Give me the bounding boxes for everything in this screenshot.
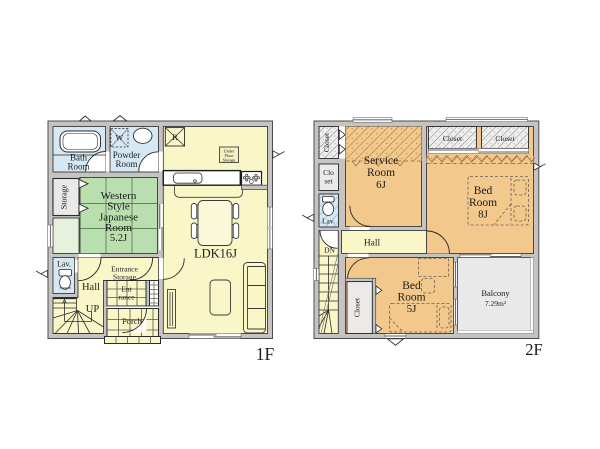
svg-text:Room: Room — [469, 197, 497, 209]
svg-text:2F: 2F — [525, 340, 542, 359]
svg-text:Service: Service — [364, 155, 398, 167]
svg-text:Closet: Closet — [353, 297, 362, 317]
svg-text:5J: 5J — [407, 303, 418, 315]
svg-text:Hall: Hall — [82, 282, 100, 293]
svg-text:DN: DN — [324, 246, 335, 255]
svg-text:rance: rance — [118, 293, 135, 302]
svg-text:Room: Room — [367, 167, 395, 179]
svg-text:Porch: Porch — [122, 316, 143, 326]
svg-text:UP: UP — [86, 304, 100, 315]
svg-text:Closet: Closet — [443, 134, 463, 143]
svg-text:R: R — [172, 132, 178, 142]
svg-text:Balcony: Balcony — [481, 288, 510, 298]
svg-text:Lav.: Lav. — [57, 260, 71, 269]
svg-text:7.29m²: 7.29m² — [485, 299, 507, 308]
svg-text:Storage: Storage — [113, 273, 137, 282]
svg-text:Bed: Bed — [474, 185, 493, 197]
svg-text:Closet: Closet — [322, 132, 331, 152]
svg-text:Lav.: Lav. — [322, 217, 335, 226]
svg-text:Room: Room — [397, 292, 425, 304]
svg-text:LDK16J: LDK16J — [194, 247, 237, 261]
svg-text:Closet: Closet — [495, 134, 515, 143]
svg-text:Bed: Bed — [402, 280, 421, 292]
svg-text:Room: Room — [67, 162, 89, 172]
svg-text:Room: Room — [115, 159, 137, 169]
svg-text:Storage: Storage — [223, 158, 236, 163]
svg-text:set: set — [324, 177, 333, 186]
svg-text:1F: 1F — [256, 344, 275, 364]
svg-text:Hall: Hall — [364, 239, 381, 249]
svg-text:W: W — [116, 134, 124, 143]
svg-text:Storage: Storage — [60, 184, 69, 209]
svg-text:8J: 8J — [478, 209, 489, 221]
svg-text:5.2J: 5.2J — [110, 233, 127, 244]
svg-text:6J: 6J — [376, 179, 387, 191]
